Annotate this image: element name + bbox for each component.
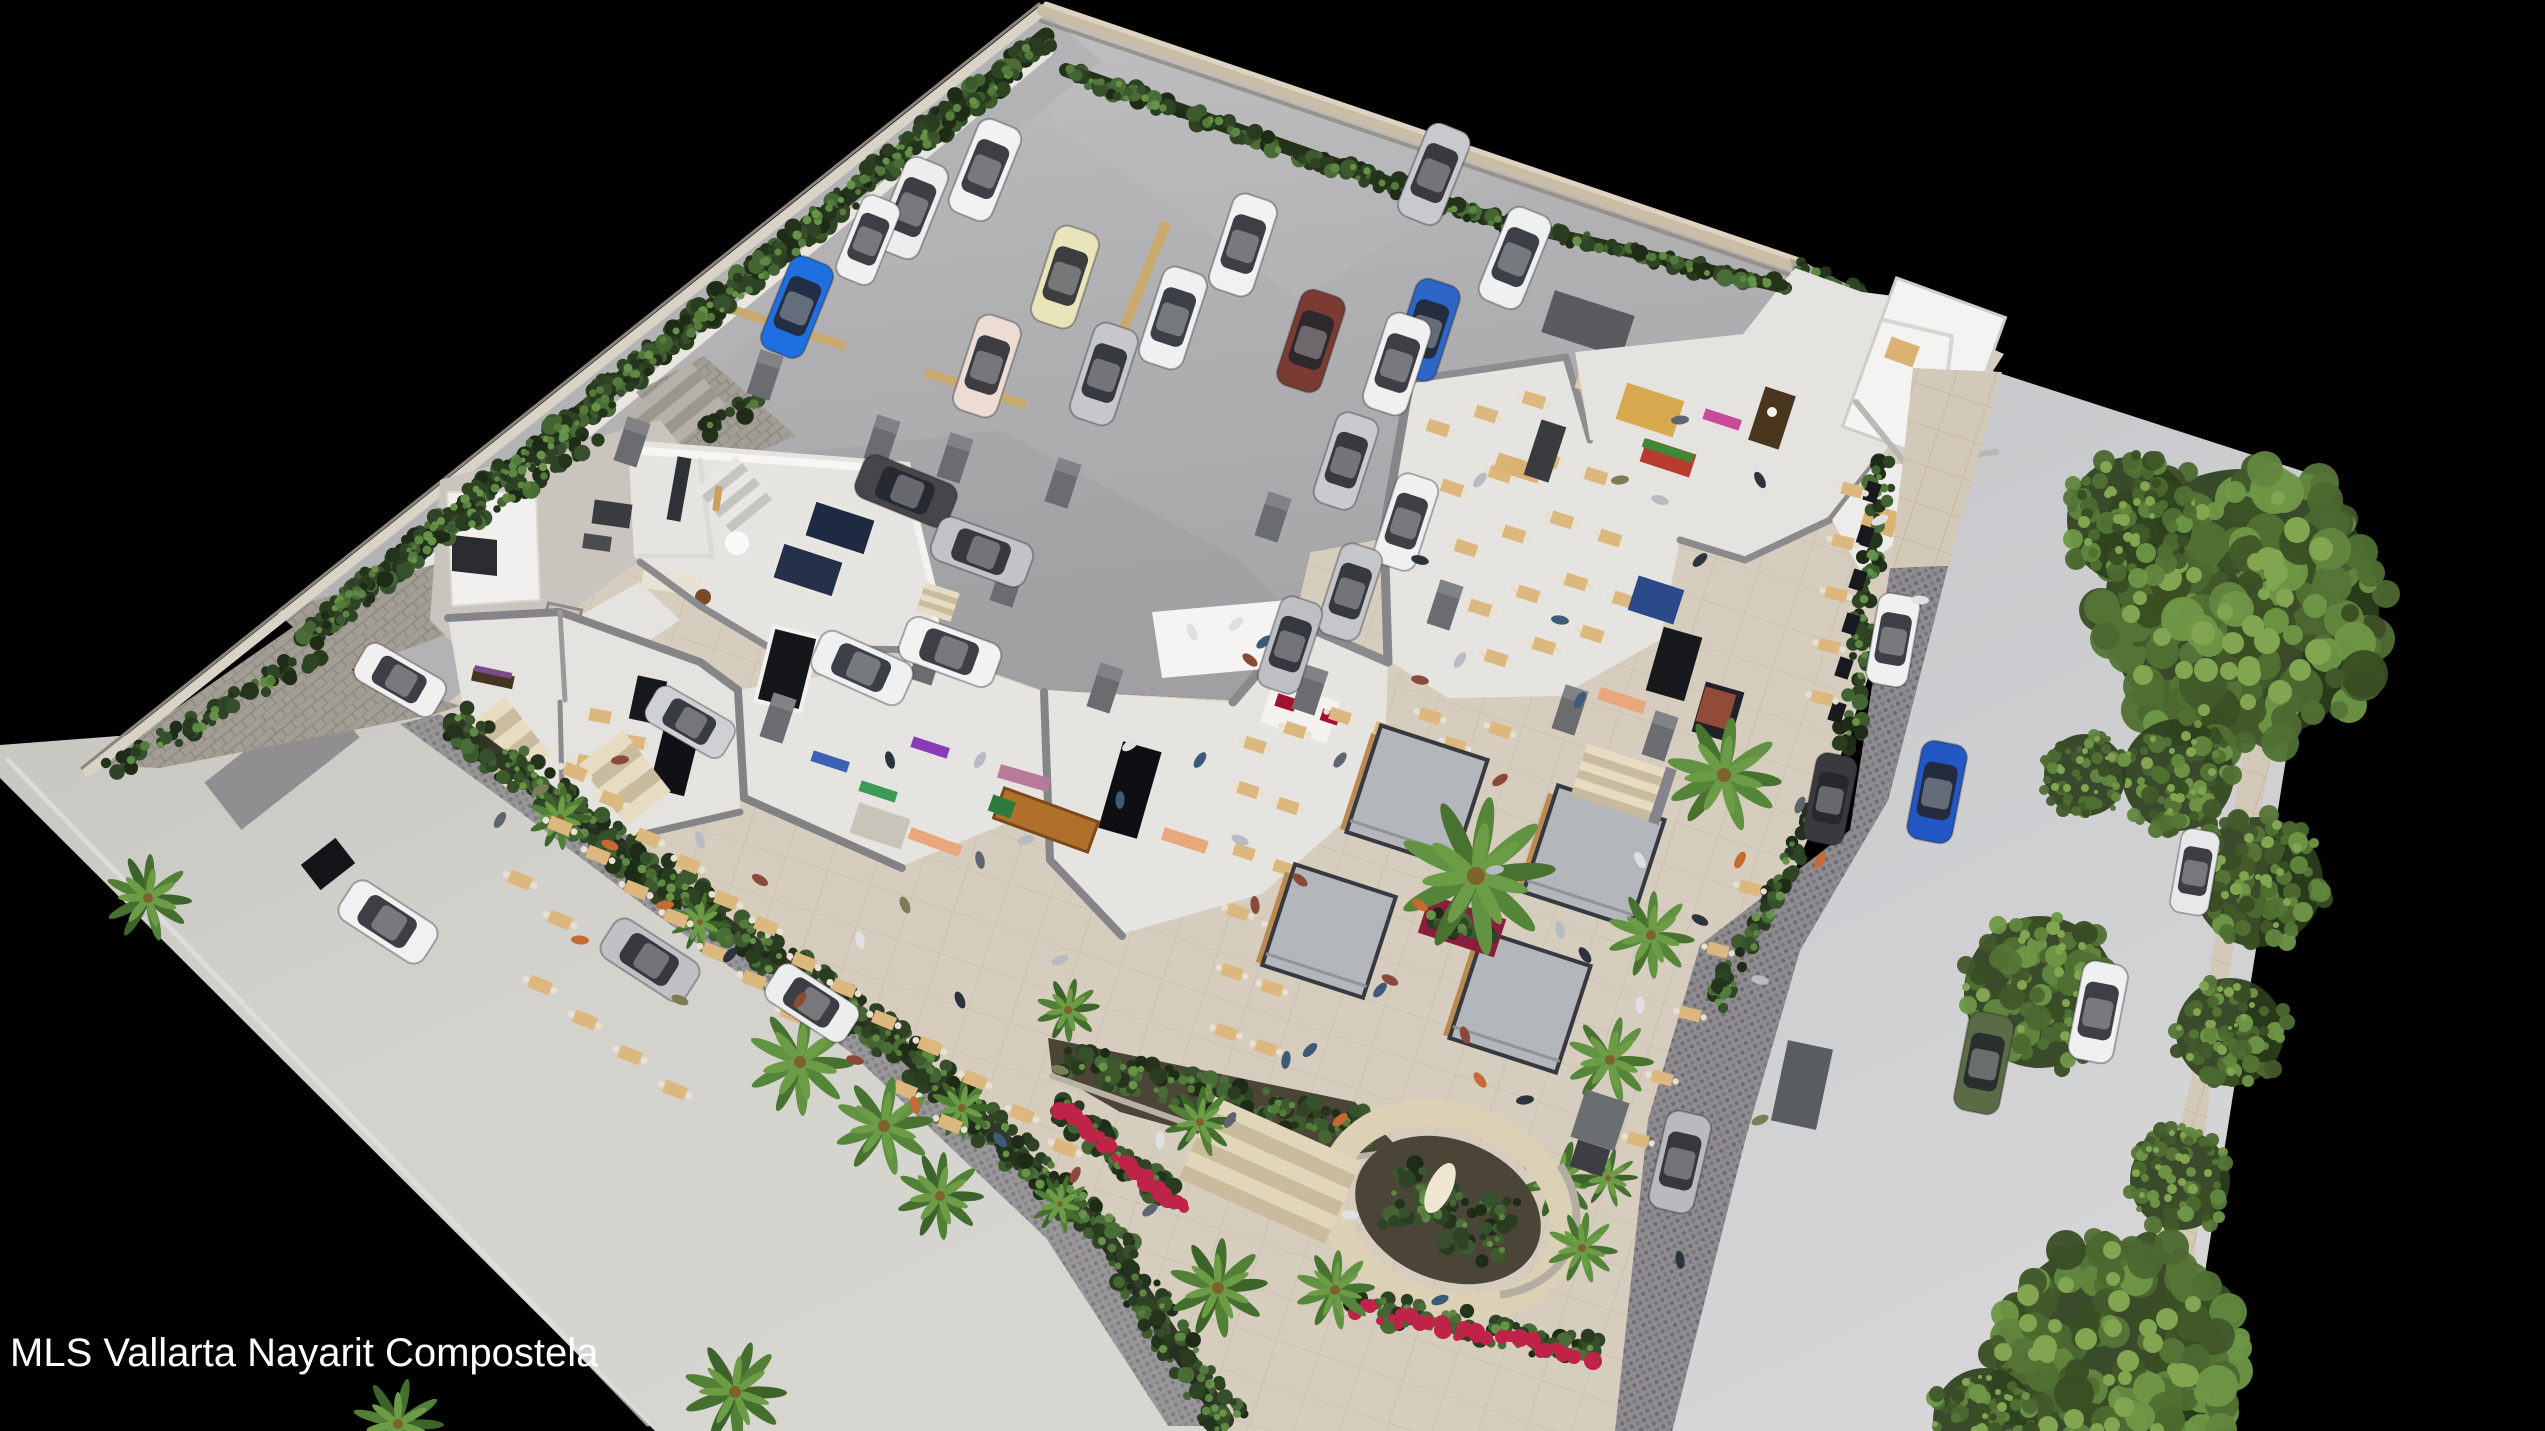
svg-text:MLS Vallarta Nayarit Compostel: MLS Vallarta Nayarit Compostela [10, 1331, 599, 1375]
